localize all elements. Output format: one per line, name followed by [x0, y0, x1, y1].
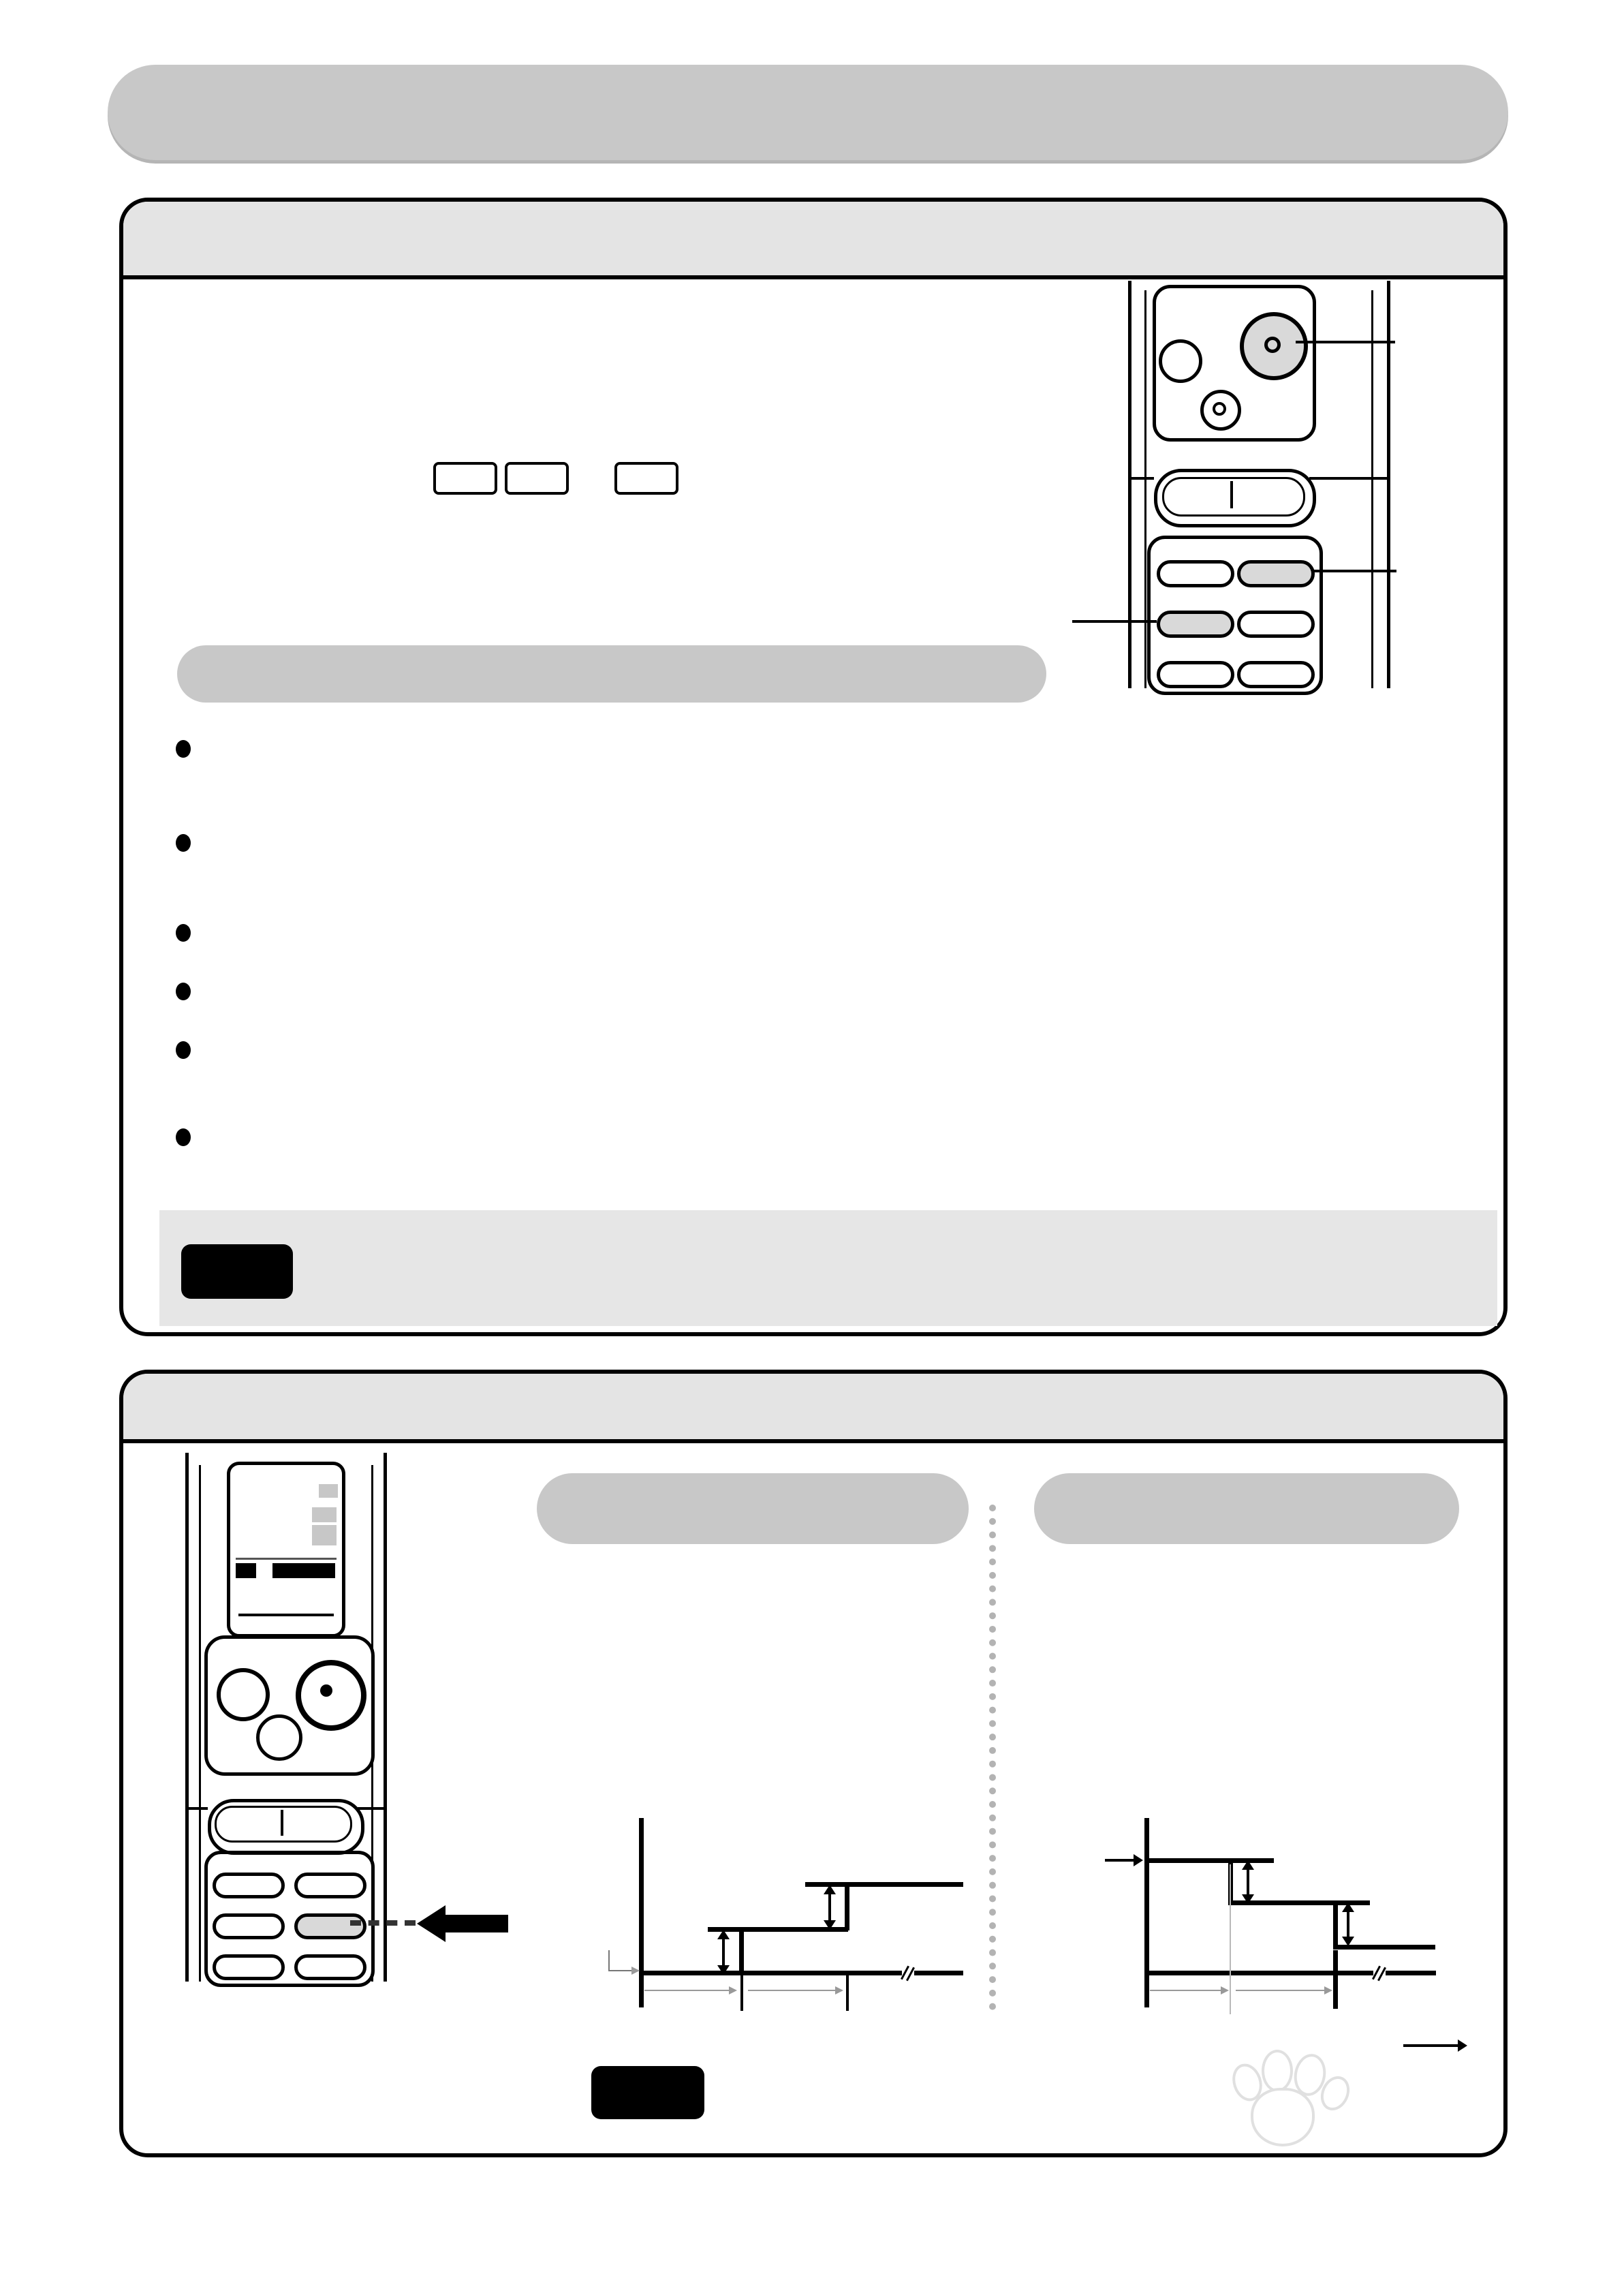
temp-rocker-inner [215, 1806, 352, 1843]
chart-a-setpoint-arrow [608, 1970, 631, 1971]
pointer-arrow-icon [417, 1905, 446, 1942]
power-button [296, 1660, 366, 1731]
remote5-body-line [199, 1465, 201, 1982]
powerful-button [1237, 661, 1315, 688]
bullet-dot [176, 1128, 191, 1146]
lcd-mode-tag [236, 1563, 256, 1578]
remote5-seam [185, 1807, 208, 1810]
remote5-seam [358, 1807, 385, 1810]
chart-b-level1-line [1144, 1858, 1274, 1863]
vitality-button [217, 1668, 270, 1721]
chart-a-delta-arrow [722, 1939, 725, 1965]
remote5-body-line [185, 1453, 189, 1982]
chart-b-axis-break [1373, 1965, 1386, 1982]
cancel-button [256, 1714, 302, 1761]
chart-a-y-axis [639, 1818, 644, 2007]
chart-a-baseline [639, 1971, 963, 1975]
chart-a-setpoint-connector [608, 1950, 610, 1971]
bullet-dot [176, 1041, 191, 1059]
lcd-uv-tag [319, 1484, 338, 1498]
chart-b-y-axis [1144, 1818, 1149, 2007]
function-button [1237, 560, 1315, 587]
panel-a-bar [537, 1473, 969, 1544]
timer-button [1237, 611, 1315, 638]
callout-line-step2 [1296, 341, 1395, 343]
timer-button [294, 1913, 366, 1939]
chart-b-delta-arrow [1247, 1870, 1249, 1894]
chart-b-delta-arrow [1347, 1912, 1349, 1937]
chart-a-delta-arrow [828, 1894, 831, 1920]
remote4-body-line [1144, 290, 1146, 688]
chart-a-axis-break [902, 1965, 914, 1982]
section5-header-strip [123, 1374, 1503, 1443]
vitality-button [1159, 339, 1202, 383]
notice-badge [181, 1244, 293, 1299]
lcd-side-tag [312, 1507, 337, 1522]
remote4-body-line [1128, 281, 1131, 688]
fan-dir-button [1157, 661, 1234, 688]
chart-b-interval-arrow [1236, 1990, 1324, 1991]
powerful-button [294, 1954, 366, 1980]
fan-speed-high-icon [433, 462, 497, 495]
chart-a-tick [740, 1975, 743, 2011]
temp-rocker-inner [1162, 477, 1305, 517]
remote4-seam [1309, 477, 1387, 480]
section4-header-strip [123, 202, 1503, 279]
remote4-seam [1131, 477, 1154, 480]
bullet-dot [176, 834, 191, 852]
pointer-arrow-shaft [443, 1915, 508, 1932]
fan-speed-button [213, 1913, 285, 1939]
section4-note-band [159, 1210, 1497, 1326]
power-button-center [1264, 337, 1281, 353]
chart-b-tick [1333, 1950, 1338, 2009]
power-button-center [320, 1684, 332, 1697]
chart-b-setpoint-arrow [1105, 1859, 1134, 1862]
chart-b-interval-arrow [1150, 1990, 1221, 1991]
chart-a-interval-arrow [644, 1990, 729, 1991]
chart-a-interval-arrow [748, 1990, 835, 1991]
chart-a-step1-riser [739, 1929, 744, 1974]
lcd-divider [236, 1558, 337, 1560]
chart-b-time-arrow [1403, 2044, 1458, 2047]
remote4-body-line [1371, 290, 1373, 688]
lcd-underline [238, 1614, 334, 1616]
bullet-dot [176, 740, 191, 758]
bullet-dot [176, 983, 191, 1000]
callout-line-step3 [1072, 620, 1157, 623]
bullet-dot [176, 924, 191, 942]
notice-badge [591, 2066, 704, 2119]
fan-speed-medium-icon [505, 462, 569, 495]
chart-b-guide [1230, 1864, 1231, 2014]
panel-b-bar [1034, 1473, 1459, 1544]
lcd-side-tag [312, 1525, 337, 1545]
remote5-lcd [227, 1462, 345, 1637]
uv-button [1157, 560, 1234, 587]
section4-subheading-bar [177, 645, 1046, 703]
remote5-body-line [384, 1453, 387, 1982]
fan-dir-button [213, 1954, 285, 1980]
chart-a-tick [846, 1975, 849, 2011]
callout-line-step1 [1312, 570, 1396, 572]
chart-a-step2-riser [845, 1884, 849, 1930]
fan-speed-button [1157, 611, 1234, 638]
hour-off-button-center [1213, 402, 1226, 416]
rocker-divider [281, 1810, 283, 1836]
chart-b-step2-riser [1333, 1900, 1338, 1949]
chart-b-baseline [1144, 1971, 1436, 1975]
uv-button [213, 1873, 285, 1898]
pointer-dashes [350, 1920, 416, 1926]
manual-page [0, 0, 1624, 2295]
function-button [294, 1873, 366, 1898]
title-banner [108, 65, 1508, 160]
lcd-mode-tag [272, 1563, 335, 1578]
rocker-divider [1230, 481, 1233, 508]
panel-divider [989, 1505, 996, 2010]
fan-speed-low-icon [614, 462, 678, 495]
